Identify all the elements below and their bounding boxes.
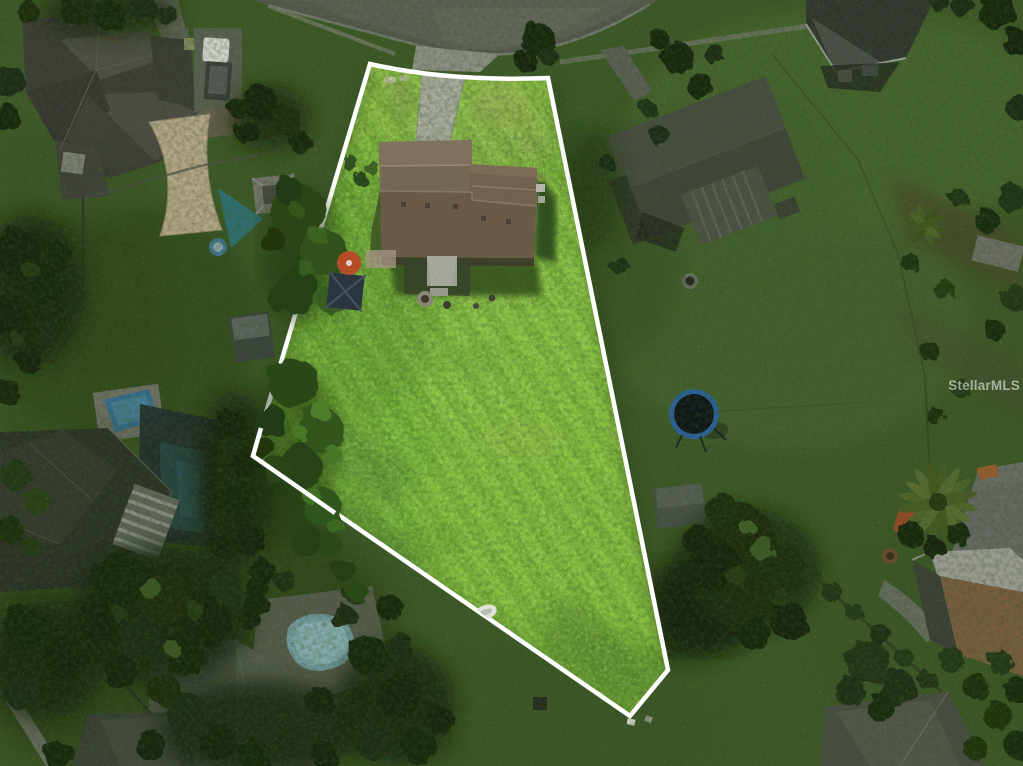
- svg-text:StellarMLS: StellarMLS: [948, 378, 1020, 393]
